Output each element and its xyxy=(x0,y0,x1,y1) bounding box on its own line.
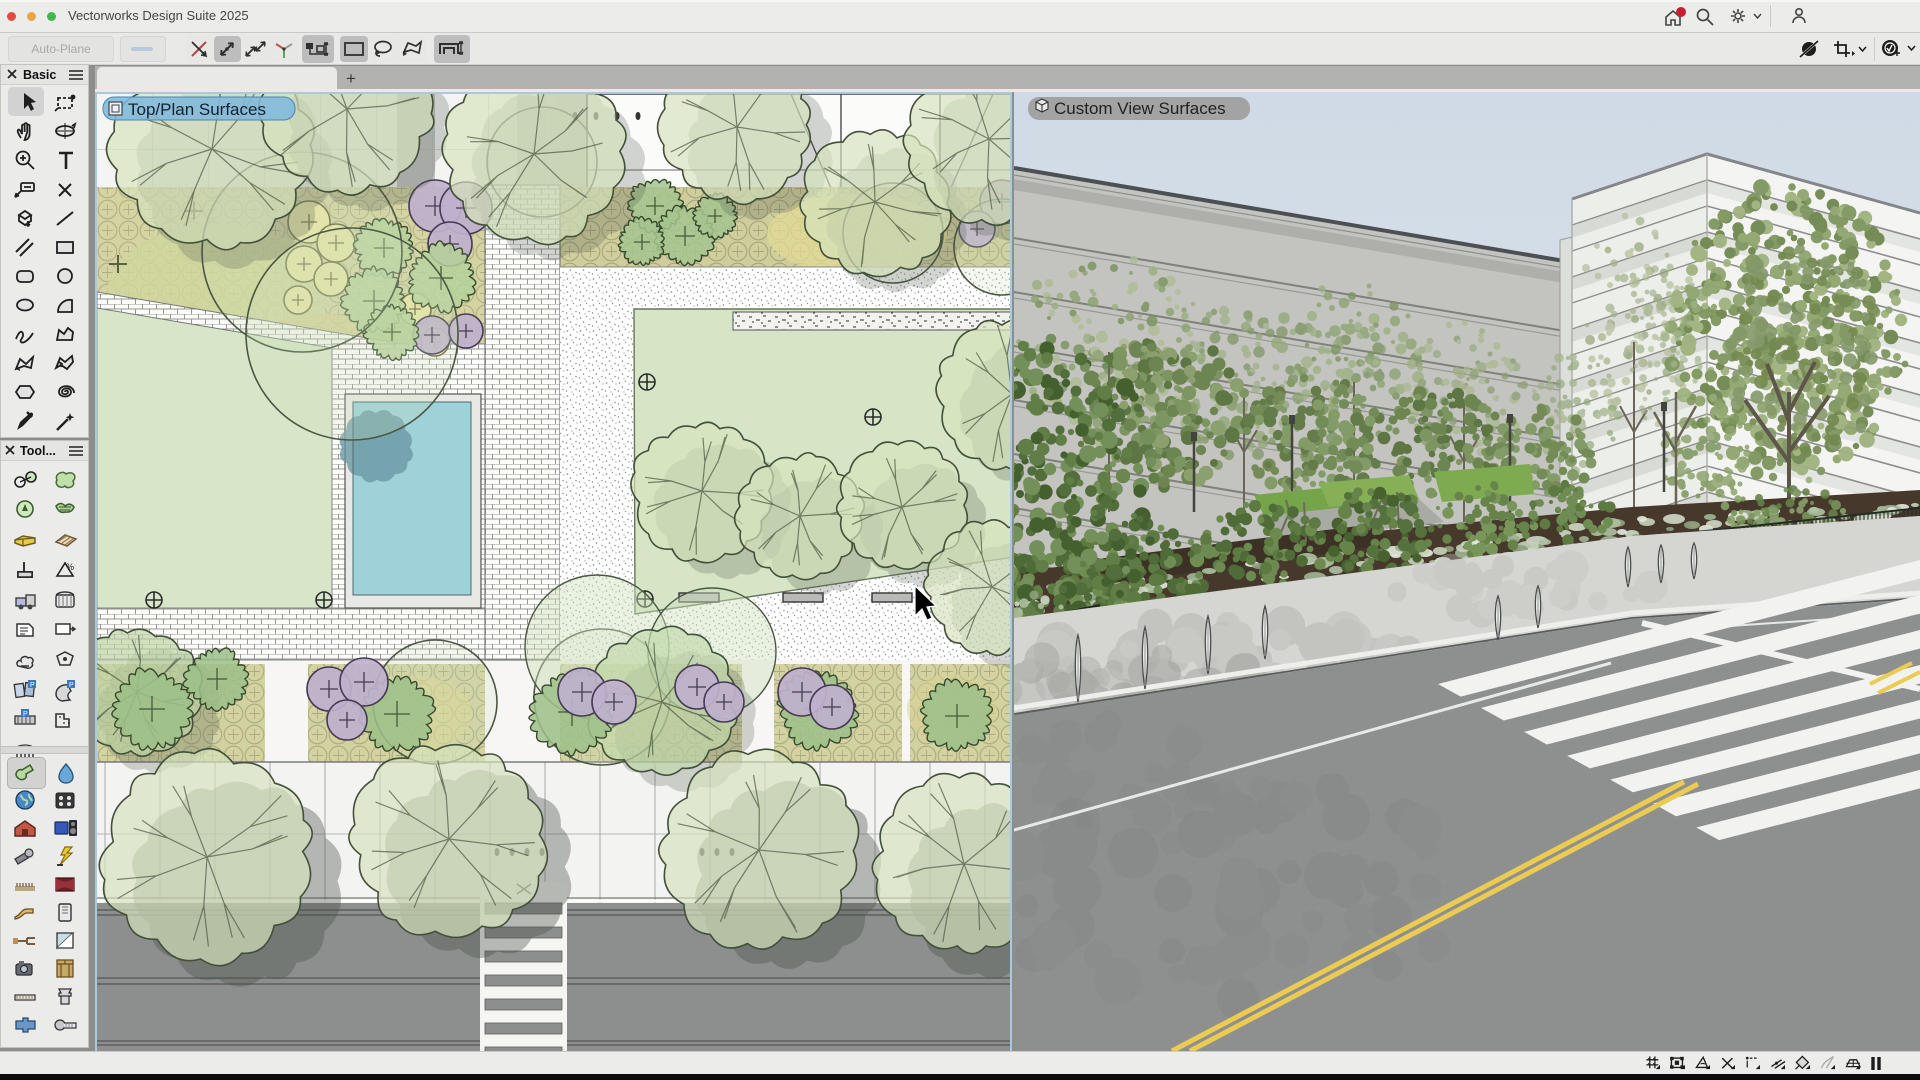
svg-text:P: P xyxy=(23,711,28,718)
svg-text:Basic: Basic xyxy=(23,68,56,82)
svg-text:Top/Plan Surfaces: Top/Plan Surfaces xyxy=(128,100,266,119)
svg-text:P: P xyxy=(69,682,74,689)
svg-text:P: P xyxy=(30,682,35,689)
svg-text:Custom View Surfaces: Custom View Surfaces xyxy=(1054,99,1226,118)
svg-text:%: % xyxy=(66,562,74,572)
svg-text:Tool...: Tool... xyxy=(20,444,56,458)
